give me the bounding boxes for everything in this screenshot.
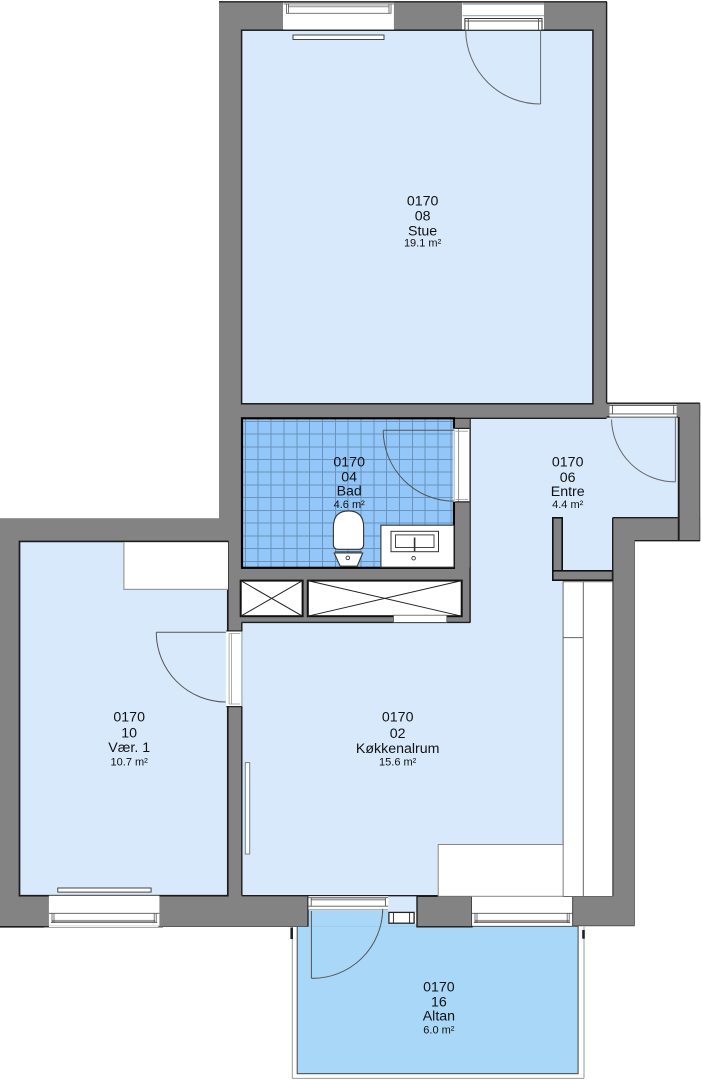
- svg-text:19.1 m²: 19.1 m²: [404, 237, 442, 249]
- svg-text:0170: 0170: [407, 193, 439, 209]
- svg-text:08: 08: [415, 209, 431, 225]
- svg-text:0170: 0170: [113, 710, 145, 726]
- svg-text:4.6 m²: 4.6 m²: [334, 499, 366, 511]
- svg-text:0170: 0170: [552, 455, 584, 471]
- svg-text:6.0 m²: 6.0 m²: [423, 1024, 455, 1036]
- svg-text:15.6 m²: 15.6 m²: [379, 756, 417, 768]
- svg-text:10: 10: [121, 726, 137, 742]
- svg-text:4.4 m²: 4.4 m²: [552, 499, 584, 511]
- svg-text:Køkkenalrum: Køkkenalrum: [356, 741, 440, 757]
- svg-text:0170: 0170: [333, 454, 365, 470]
- svg-text:Altan: Altan: [423, 1008, 455, 1024]
- svg-text:0170: 0170: [423, 980, 455, 996]
- svg-text:Entre: Entre: [551, 484, 585, 500]
- svg-text:Bad: Bad: [337, 483, 362, 499]
- svg-text:0170: 0170: [382, 710, 414, 726]
- svg-text:10.7 m²: 10.7 m²: [111, 757, 149, 769]
- svg-text:Vær. 1: Vær. 1: [108, 740, 150, 756]
- svg-text:02: 02: [390, 726, 406, 742]
